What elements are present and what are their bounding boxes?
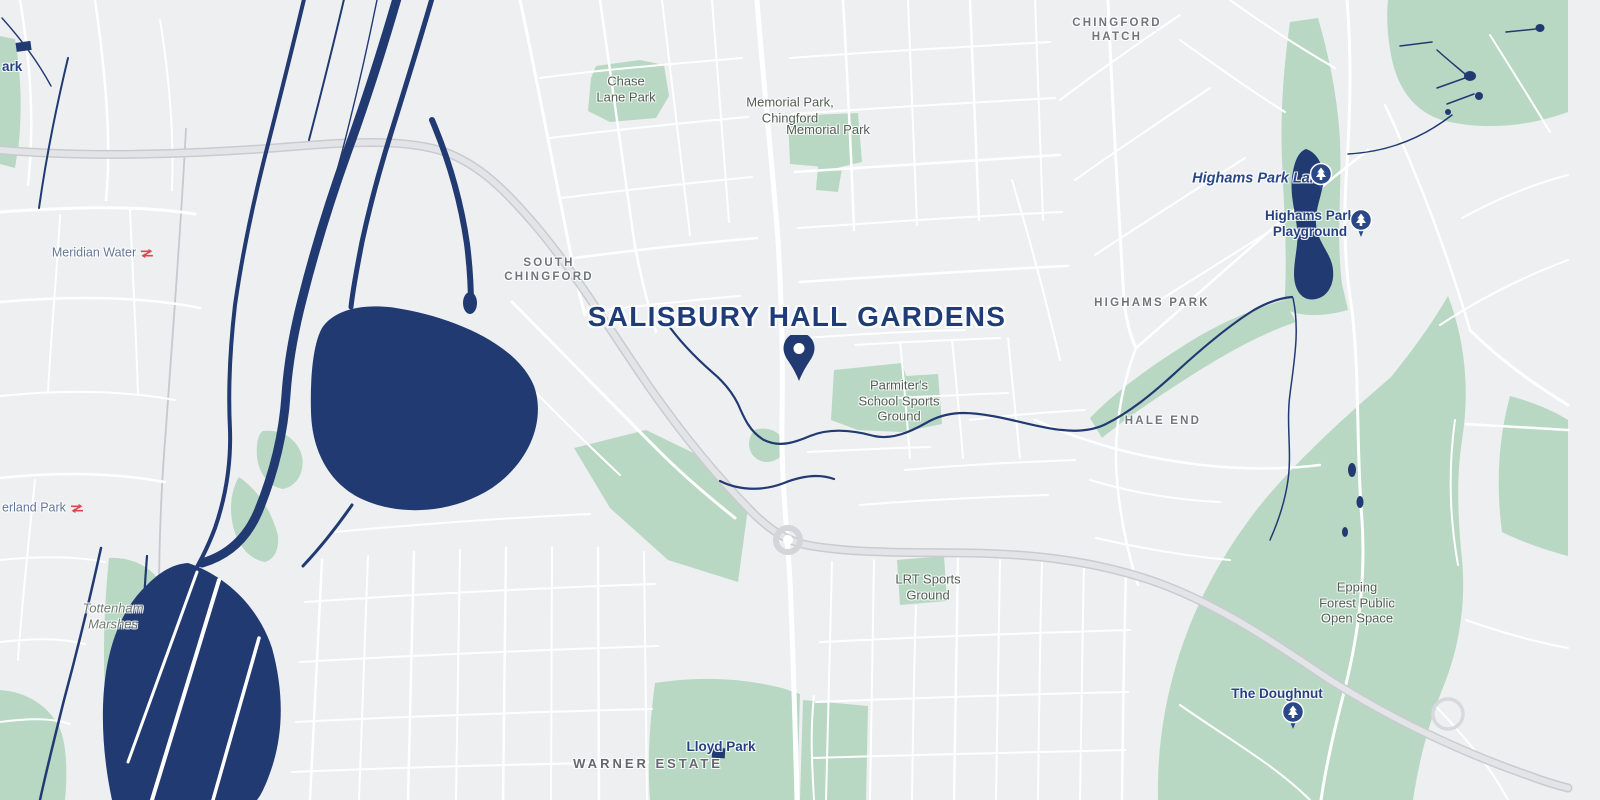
map-label-the-doughnut: The Doughnut (1231, 686, 1322, 702)
tree-pin-icon (1308, 161, 1334, 195)
tree-pin-icon (1348, 207, 1374, 241)
highams-park-playground-tree-pin[interactable] (1348, 207, 1374, 241)
map-label-epping-forest-public-open-space: Epping Forest Public Open Space (1319, 580, 1395, 627)
map-label-hale-end: HALE END (1125, 415, 1201, 429)
salisbury-hall-gardens-pin[interactable] (781, 335, 817, 383)
map-canvas[interactable]: CHINGFORD HATCHSOUTH CHINGFORDHIGHAMS PA… (0, 0, 1600, 800)
national-rail-icon (140, 248, 154, 258)
map-label-south-chingford: SOUTH CHINGFORD (504, 257, 593, 285)
map-label-lrt-sports-ground: LRT Sports Ground (895, 571, 960, 602)
map-label-lloyd-park: Lloyd Park (686, 739, 755, 755)
map-label-chingford-hatch: CHINGFORD HATCH (1072, 17, 1161, 45)
highams-park-lake-tree-pin[interactable] (1308, 161, 1334, 195)
map-label-highams-park: HIGHAMS PARK (1094, 297, 1210, 311)
tree-pin-icon (1280, 699, 1306, 733)
the-doughnut-tree-pin[interactable] (1280, 699, 1306, 733)
map-label-tottenham-marshes: Tottenham Marshes (83, 600, 144, 631)
map-label-parmiter-s-school-sports-ground: Parmiter's School Sports Ground (859, 378, 940, 425)
map-label-memorial-park-chingford: Memorial Park, Chingford (746, 94, 833, 125)
map-label-highams-park-playground: Highams Park Playground (1265, 208, 1355, 240)
marker-title: SALISBURY HALL GARDENS (588, 301, 1007, 333)
map-label-memorial-park: Memorial Park (786, 122, 870, 138)
map-label-highams-park-lake: Highams Park Lake (1192, 170, 1326, 187)
map-label-meridian-water: Meridian Water (52, 246, 154, 261)
map-label-erland-park: erland Park (2, 501, 84, 516)
map-label-warner-estate: WARNER ESTATE (573, 756, 723, 772)
national-rail-icon (70, 503, 84, 513)
map-label-chase-lane-park: Chase Lane Park (596, 73, 655, 104)
labels-overlay: CHINGFORD HATCHSOUTH CHINGFORDHIGHAMS PA… (0, 0, 1600, 800)
map-label-ark: ark (2, 59, 22, 75)
map-pin-icon (781, 335, 817, 383)
